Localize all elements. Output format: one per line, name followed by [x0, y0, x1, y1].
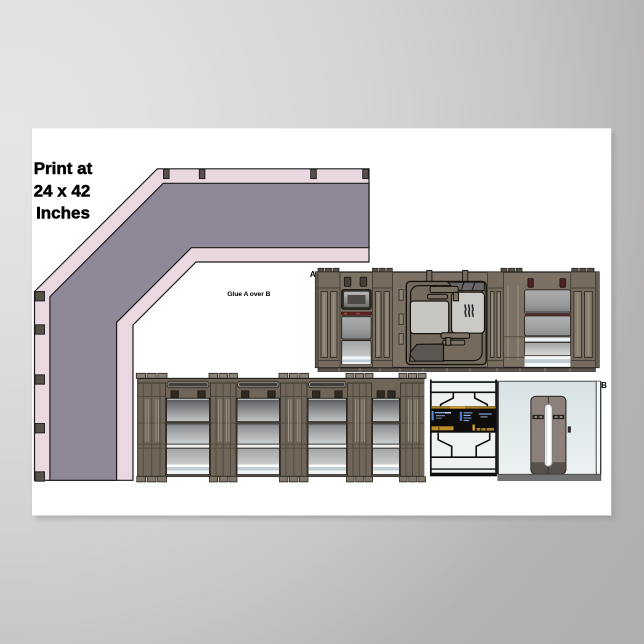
svg-text:24 x 42: 24 x 42 [34, 182, 91, 201]
svg-text:A: A [310, 270, 316, 279]
svg-text:Print at: Print at [34, 159, 93, 178]
svg-text:B: B [601, 381, 607, 390]
svg-text:Glue A over B: Glue A over B [227, 291, 270, 298]
svg-text:Inches: Inches [36, 204, 90, 223]
